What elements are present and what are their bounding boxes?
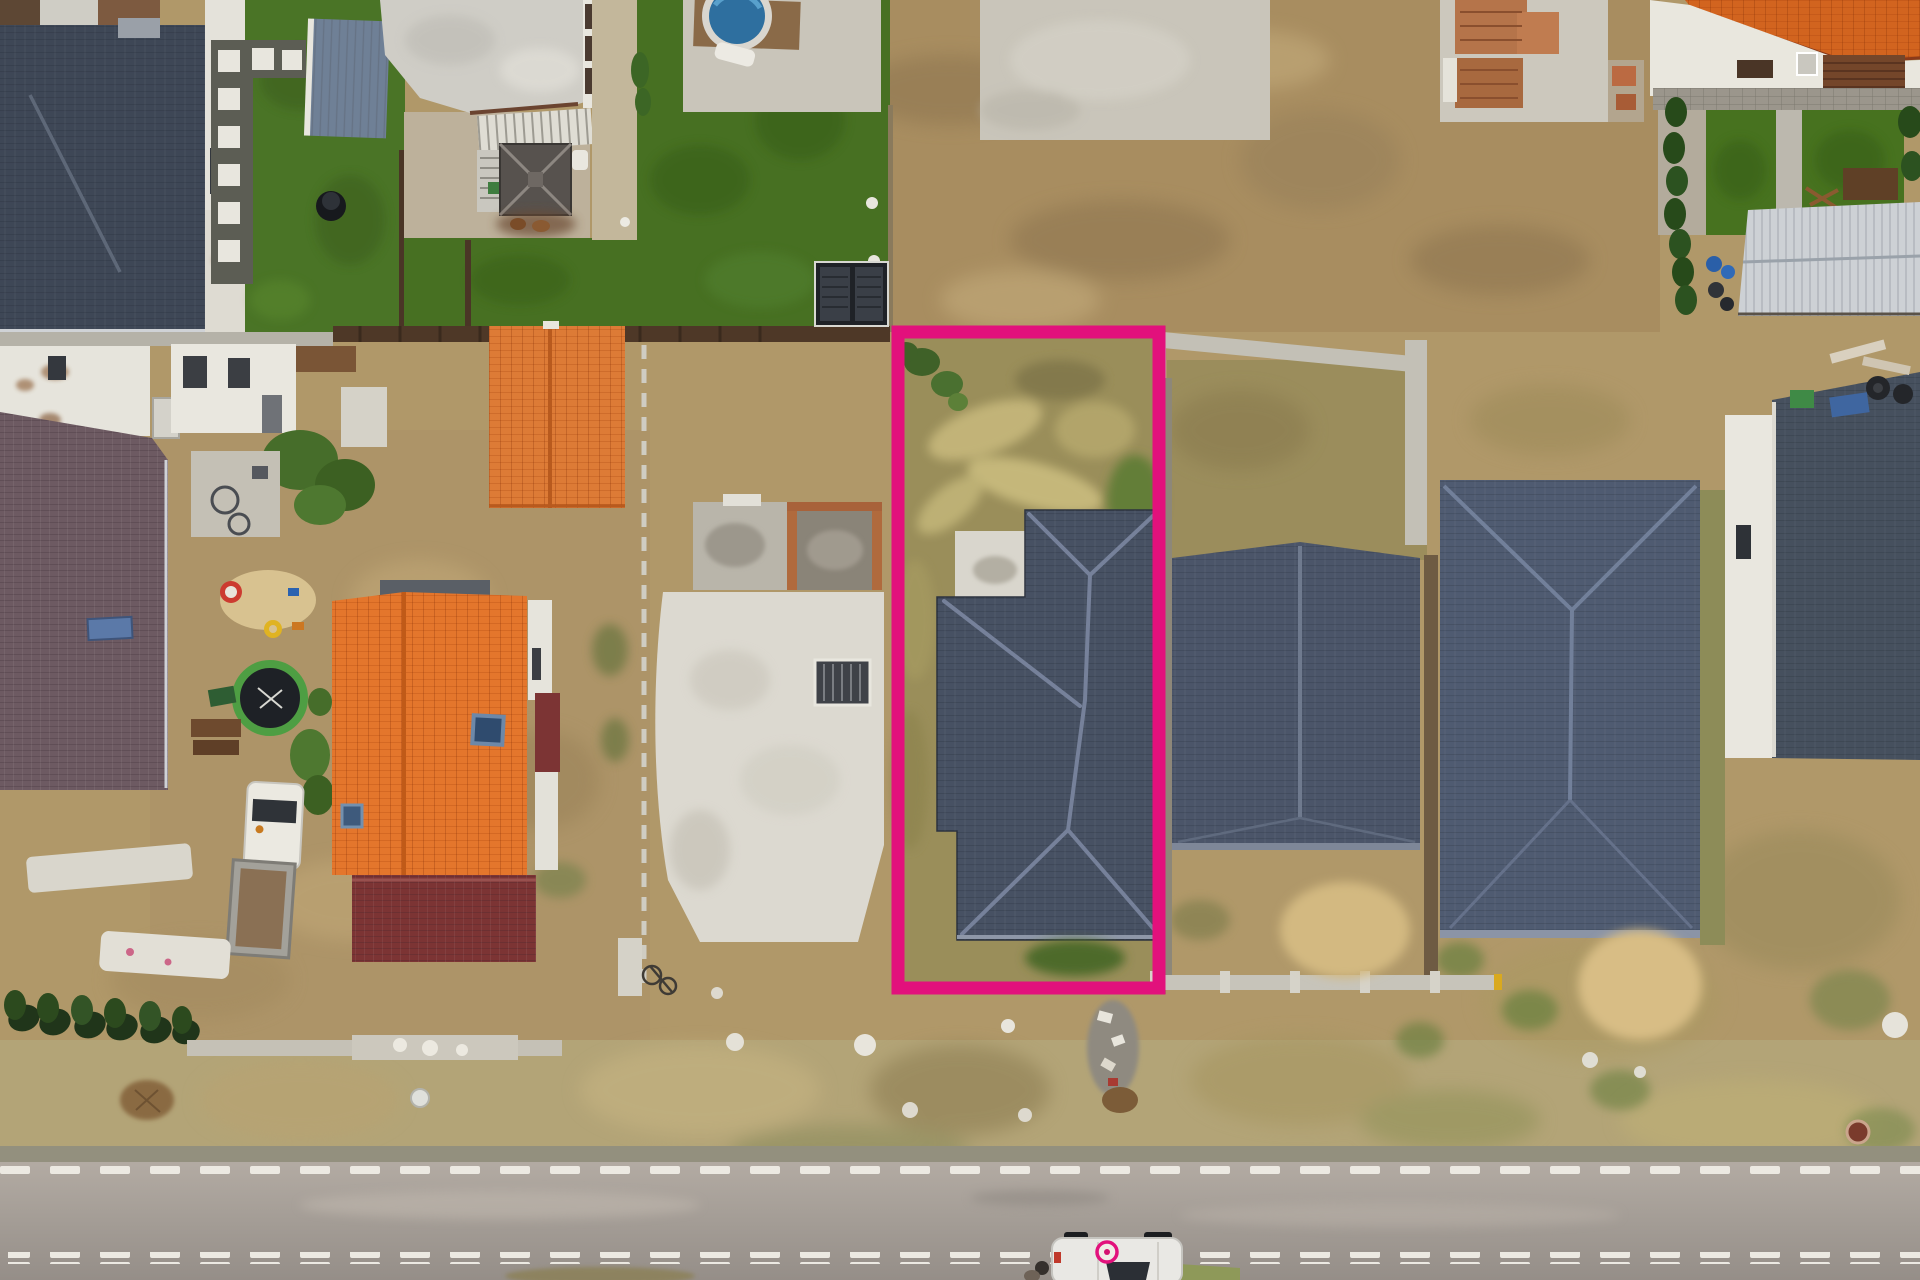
white-sack — [1443, 58, 1457, 102]
firepit-patio — [191, 451, 280, 537]
trampoline — [236, 664, 304, 732]
window — [1736, 525, 1751, 559]
hedge-bush — [635, 88, 651, 116]
garden-ornament — [393, 1038, 407, 1052]
eave — [1172, 843, 1420, 850]
yellow-marker — [1494, 974, 1502, 990]
satellite-dish — [411, 1089, 429, 1107]
white-stone — [1018, 1108, 1032, 1122]
grass-clump — [1025, 940, 1125, 976]
loose-bricks — [1612, 66, 1636, 86]
white-house-top — [380, 0, 608, 240]
window — [228, 358, 250, 388]
window — [183, 356, 207, 388]
car-taillight — [1054, 1252, 1061, 1263]
brick-foundation-box — [787, 502, 882, 590]
garden-ornament — [456, 1044, 468, 1056]
garden-light — [866, 197, 878, 209]
gray-wall — [0, 332, 333, 346]
blue-barrel — [1721, 265, 1735, 279]
window — [1737, 60, 1773, 78]
highlighted-plot — [892, 326, 1166, 994]
fence — [465, 240, 471, 335]
fence-a-b — [1424, 555, 1438, 980]
rooflight — [1797, 53, 1817, 75]
playhouse-roof — [1843, 168, 1898, 200]
orange-shed — [489, 321, 625, 508]
hedge-bush — [631, 52, 649, 88]
house-c — [1725, 372, 1920, 760]
dog — [510, 218, 526, 230]
garden-ornament — [422, 1040, 438, 1056]
dark-pot — [1708, 282, 1724, 298]
blue-barrel — [1706, 256, 1722, 272]
window — [532, 648, 541, 680]
gazebo — [500, 144, 571, 215]
white-wall — [1725, 415, 1772, 758]
sand-patch — [1578, 930, 1702, 1040]
big-orange-house — [332, 580, 560, 962]
parapet — [723, 494, 761, 506]
wood-deck — [296, 346, 356, 372]
chimney — [118, 18, 160, 38]
white-dish — [1882, 1012, 1908, 1038]
aerial-photo-canvas — [0, 0, 1920, 1280]
top-right-property — [1650, 0, 1920, 316]
skylight — [472, 715, 503, 745]
lane-marking-upper — [0, 1163, 1920, 1175]
silver-shed — [1738, 202, 1920, 316]
white-stone — [1634, 1066, 1646, 1078]
purple-roof-house — [0, 412, 168, 790]
maroon-wing — [535, 693, 560, 772]
stairwell — [815, 660, 870, 705]
window — [48, 356, 66, 380]
truck-cab — [244, 782, 304, 870]
aerial-photo — [0, 0, 1920, 1280]
sand-patch — [1280, 882, 1410, 978]
white-chair — [572, 150, 588, 170]
solar-shed — [815, 262, 888, 326]
dog — [532, 220, 550, 232]
planter — [191, 719, 241, 737]
manhole-cover — [1847, 1121, 1869, 1143]
gray-wall-return — [1405, 340, 1427, 545]
white-bird — [620, 217, 630, 227]
green-bin — [1790, 390, 1814, 408]
white-stone — [711, 987, 723, 999]
white-stone — [1582, 1052, 1598, 1068]
skylight — [88, 617, 133, 640]
car-windshield — [1106, 1262, 1150, 1280]
skylight — [342, 805, 362, 827]
gravel-strip — [592, 0, 637, 240]
house-b — [1440, 480, 1700, 938]
block-pile — [341, 387, 387, 447]
white-stone — [902, 1102, 918, 1118]
wood-pergola — [1823, 55, 1905, 91]
white-stone — [1001, 1019, 1015, 1033]
grass-strip — [1700, 490, 1725, 945]
curb-strip — [0, 1146, 1920, 1162]
white-stone — [854, 1034, 876, 1056]
concrete-walk — [1776, 110, 1802, 222]
road — [0, 1146, 1920, 1280]
house-a — [1172, 542, 1420, 850]
slab-piece — [618, 938, 642, 996]
metal-roof-poolhouse — [304, 19, 390, 139]
planter — [193, 740, 239, 755]
lane-marking-lower — [8, 1252, 1920, 1264]
windshield — [252, 799, 297, 823]
maroon-porch-roof — [352, 875, 536, 962]
white-two-story-house — [171, 344, 296, 433]
dark-pot — [1720, 297, 1734, 311]
white-stone — [726, 1033, 744, 1051]
door — [262, 395, 282, 433]
